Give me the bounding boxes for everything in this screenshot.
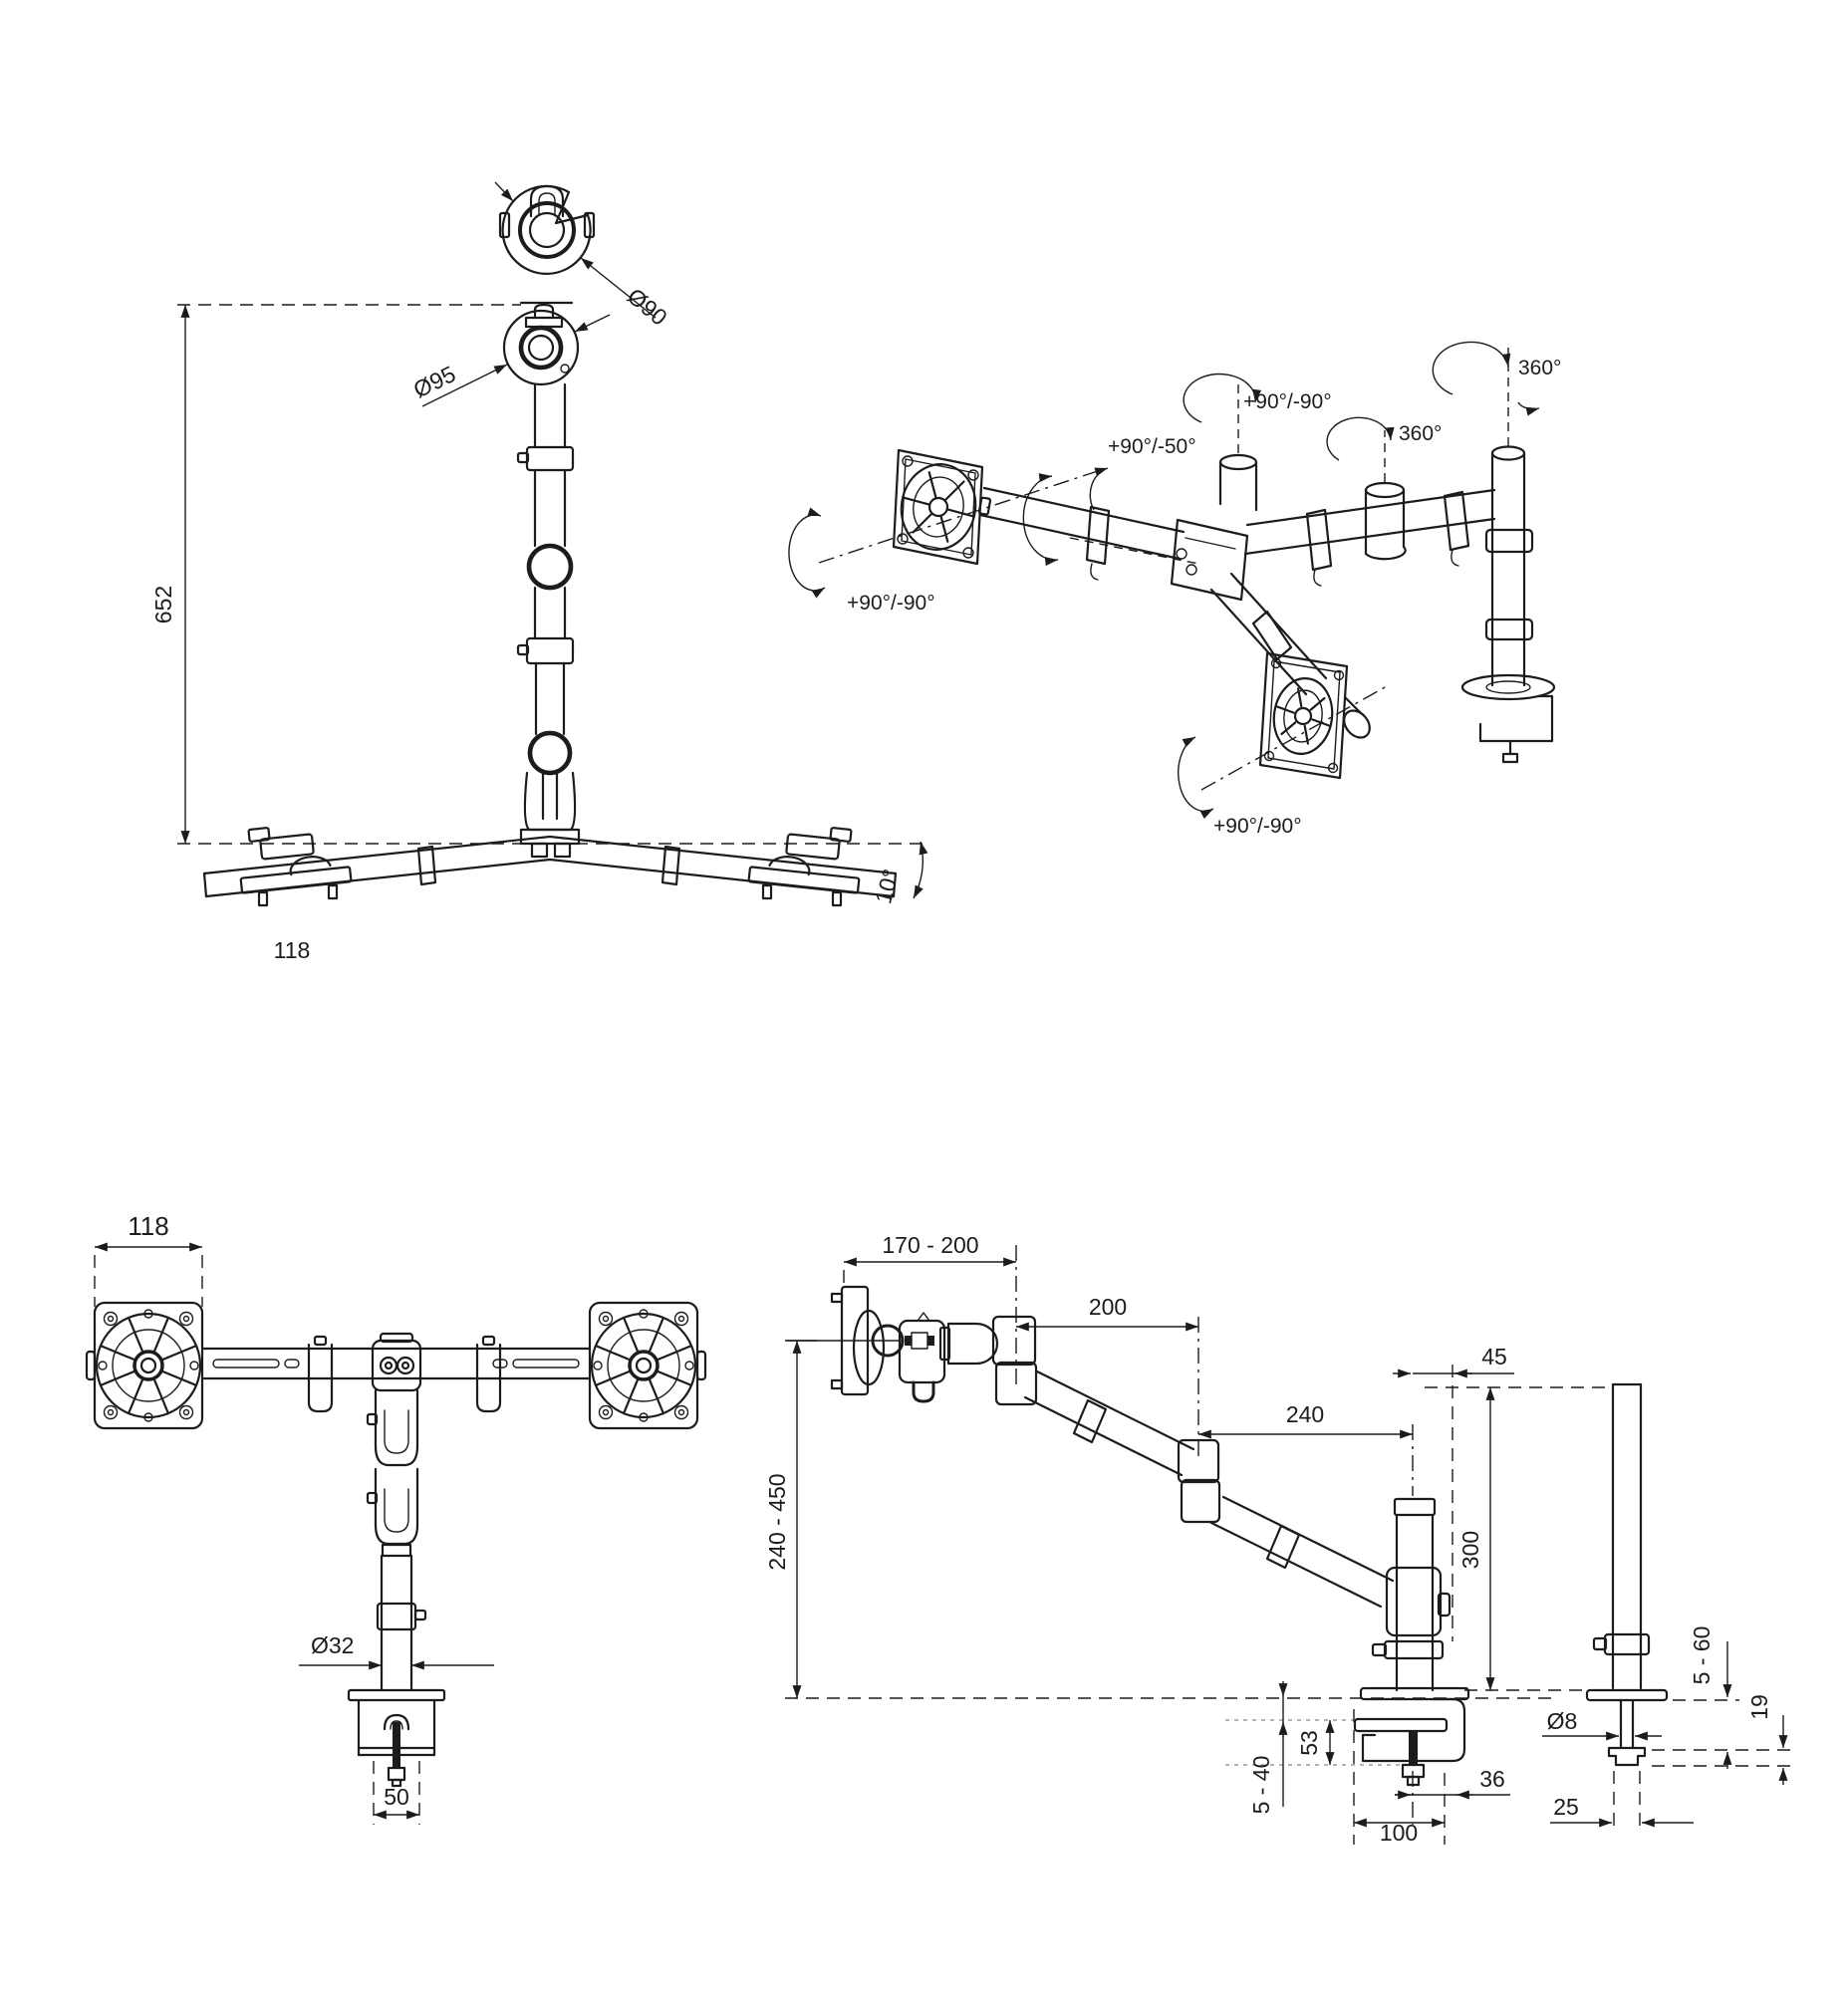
view-front: 118	[87, 1211, 705, 1825]
dim-label-652: 652	[150, 586, 176, 623]
pole-top-clamp-detail	[500, 186, 594, 274]
dim-clamp-width: 50	[374, 1761, 419, 1825]
dim-label-200: 200	[1089, 1294, 1127, 1320]
dim-label-53: 53	[1296, 1730, 1322, 1756]
arm-desk-clamp	[1355, 1699, 1464, 1785]
dim-tilt-angle: 10°	[870, 842, 923, 906]
dim-label-25: 25	[1553, 1794, 1579, 1820]
dim-label-170-200: 170 - 200	[882, 1232, 978, 1258]
dim-head-depth: 170 - 200	[844, 1232, 1016, 1384]
arm-tube-2	[1211, 1497, 1393, 1607]
iso-rot-pole: 360°	[1433, 342, 1561, 446]
dim-height-range: 240 - 450	[764, 1341, 817, 1698]
front-vesa-plate-right	[590, 1303, 697, 1428]
dim-clamp-depth: 36	[1395, 1766, 1510, 1825]
dim-desk-thickness: 5 - 60	[1652, 1626, 1795, 1769]
dim-label-d90: Ø90	[623, 283, 672, 331]
dim-label-45: 45	[1481, 1344, 1507, 1369]
view-side-elevation: Ø90 Ø95	[150, 182, 926, 963]
rot-label-vesa-left: +90°/-90°	[847, 592, 935, 615]
dim-label-5-40: 5 - 40	[1248, 1756, 1274, 1815]
iso-rot-head: +90°/-90°	[1184, 374, 1331, 453]
base-foot-left	[241, 828, 352, 905]
dim-label-d95: Ø95	[409, 361, 459, 402]
rot-label-arm: +90°/-50°	[1108, 435, 1196, 458]
rot-label-head: +90°/-90°	[1243, 390, 1332, 413]
dim-label-240-450: 240 - 450	[764, 1473, 790, 1570]
iso-upper-arm	[980, 488, 1184, 580]
iso-pole	[1462, 447, 1554, 763]
dim-pole-offset: 45	[1393, 1344, 1514, 1641]
grommet-pole	[1587, 1384, 1667, 1765]
dim-washer-height: 19	[1652, 1694, 1795, 1785]
front-left-latch	[87, 1352, 95, 1379]
pole-column	[518, 384, 579, 857]
dim-lower-arm: 240	[1198, 1401, 1413, 1496]
front-column	[368, 1390, 425, 1690]
iso-vesa-plate-left	[894, 450, 990, 564]
dim-label-d32: Ø32	[311, 1632, 354, 1658]
dim-label-36: 36	[1479, 1766, 1505, 1792]
dim-clamp-throat: 100	[1354, 1709, 1445, 1846]
front-right-latch	[697, 1352, 705, 1379]
dim-label-5-60: 5 - 60	[1689, 1626, 1715, 1685]
arm-link	[940, 1324, 997, 1364]
dim-height-652: 652	[150, 305, 926, 844]
dim-label-d8: Ø8	[1547, 1708, 1578, 1734]
dim-grommet-width: 25	[1550, 1771, 1694, 1831]
view-isometric: +90°/-90° +90°/-90° +90°/-50°	[789, 342, 1561, 838]
iso-rot-mid: 360°	[1327, 417, 1442, 482]
front-center-joint	[373, 1334, 420, 1390]
view-arm-side: 170 - 200 200 240 45 240 - 450	[764, 1232, 1795, 1846]
technical-drawing: Ø90 Ø95	[0, 0, 1848, 1992]
arm-elbow-1	[993, 1317, 1036, 1404]
arm-tube-1	[1025, 1371, 1193, 1475]
rot-label-vesa-bottom: +90°/-90°	[1213, 815, 1302, 838]
front-desk-clamp	[349, 1690, 444, 1786]
arm-vesa-head	[787, 1287, 944, 1401]
iso-crossbar	[1245, 483, 1494, 586]
dim-vesa-width: 118	[95, 1211, 202, 1307]
iso-axis-left: +90°/-90°	[789, 469, 1104, 615]
rot-label-mid: 360°	[1399, 422, 1442, 445]
dim-label-100: 100	[1380, 1820, 1418, 1846]
iso-lower-arm	[1211, 574, 1326, 694]
dim-pole-diameter: Ø32	[299, 1632, 494, 1665]
dim-label-19: 19	[1746, 1694, 1772, 1720]
dim-label-50: 50	[384, 1784, 409, 1810]
dim-label-240: 240	[1286, 1401, 1324, 1427]
drawing-canvas: Ø90 Ø95	[0, 0, 1848, 1992]
dim-clamp-range: 5 - 40	[1248, 1681, 1283, 1814]
dim-label-118: 118	[128, 1211, 168, 1241]
pole-swivel-ring	[504, 303, 578, 384]
iso-vesa-plate-bottom	[1260, 653, 1375, 778]
base-legs	[204, 837, 896, 896]
dim-bolt-diameter: Ø8	[1542, 1708, 1662, 1736]
dim-top-diameter: Ø90	[495, 182, 672, 331]
dim-label-foot-118: 118	[274, 937, 311, 963]
base-foot-right	[748, 828, 859, 905]
rot-label-pole: 360°	[1518, 357, 1561, 379]
iso-center-joint	[1172, 455, 1256, 600]
front-vesa-plate	[95, 1303, 202, 1428]
dim-label-300: 300	[1457, 1531, 1483, 1569]
